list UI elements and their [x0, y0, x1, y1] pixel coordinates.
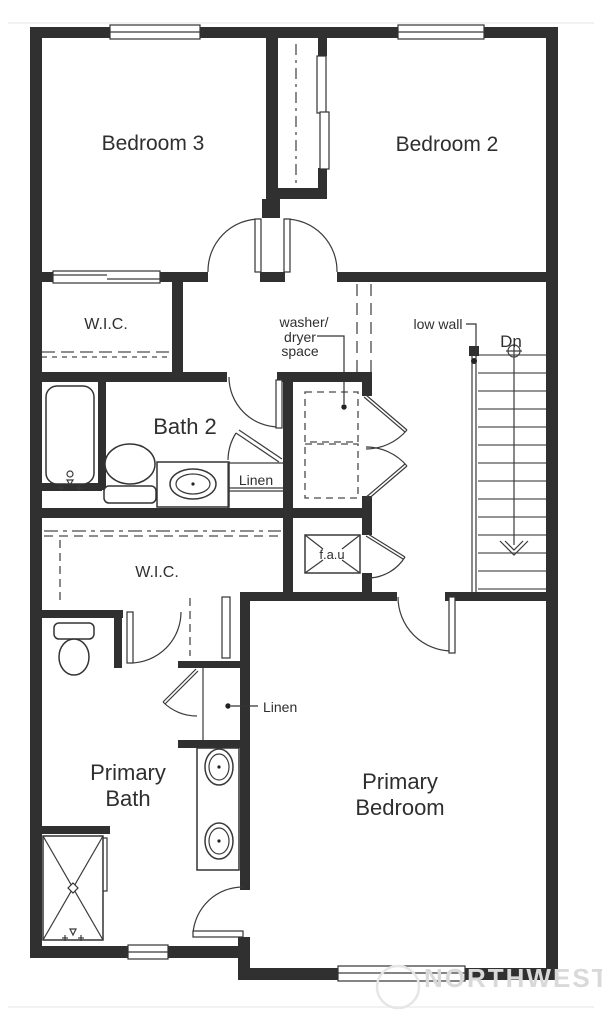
label-washer-dryer: washer/: [278, 314, 328, 330]
wall-stub: [160, 272, 172, 282]
label-bedroom2: Bedroom 2: [396, 133, 499, 156]
low-wall-cap: [469, 346, 479, 356]
cased-opening-wic1: [53, 271, 160, 283]
wall-segment: [168, 946, 250, 958]
label-primary-bath: Bath: [105, 786, 150, 811]
wall-segment: [445, 592, 558, 601]
wall-closet: [266, 38, 278, 188]
label-linen-bath2: Linen: [239, 472, 273, 488]
wall-toilet-room: [114, 618, 122, 668]
label-primary-bedroom: Primary: [362, 769, 438, 794]
wall-segment: [30, 508, 372, 518]
wall-segment-right: [546, 27, 558, 980]
wall-segment: [178, 740, 250, 748]
label-primary-bedroom: Bedroom: [355, 795, 444, 820]
label-wic2: W.I.C.: [135, 564, 179, 581]
wall-stub: [262, 199, 280, 218]
wall-stub: [362, 518, 372, 535]
wall-segment: [200, 27, 398, 38]
wall-shower: [30, 826, 110, 834]
wall-segment: [172, 282, 183, 372]
label-bedroom3: Bedroom 3: [102, 132, 205, 155]
wall-closet-stub: [318, 38, 327, 56]
watermark-text: NORTHWEST: [424, 963, 602, 993]
wall-closet: [266, 188, 327, 199]
bathtub: [46, 386, 94, 491]
vanity-bath2: [157, 462, 229, 507]
wall-tub-niche: [98, 380, 106, 490]
label-primary-bath: Primary: [90, 760, 166, 785]
toilet-bath2: [104, 444, 156, 503]
wall-segment: [30, 946, 128, 958]
wall-segment: [245, 592, 397, 601]
label-fau: f.a.u: [319, 547, 344, 562]
low-wall-leader-dot: [471, 358, 477, 364]
wall-segment: [240, 592, 250, 890]
floor-plan-canvas: Bedroom 3 Bedroom 2 W.I.C. Bath 2 W.I.C.…: [0, 0, 602, 1022]
window-bedroom3: [110, 25, 200, 39]
window-primary-bath: [128, 945, 168, 959]
washer-leader-dot: [341, 404, 346, 409]
wall-segment: [260, 272, 285, 282]
vanity-primary: [197, 748, 239, 870]
wall-stub: [42, 272, 53, 282]
wall-segment: [337, 272, 546, 282]
label-stairs-dn: Dn: [500, 332, 522, 351]
wall-stub: [362, 382, 372, 396]
wall-segment: [30, 372, 227, 382]
wall-segment: [178, 661, 250, 668]
wall-segment-left: [30, 27, 42, 958]
wall-segment: [240, 968, 338, 980]
wall-segment: [283, 372, 293, 601]
wall-closet-stub: [318, 168, 327, 188]
label-linen-primary: Linen: [263, 699, 297, 715]
label-washer-dryer: space: [281, 343, 319, 359]
window-bedroom2: [398, 25, 484, 39]
label-bath2: Bath 2: [153, 414, 217, 439]
label-low-wall: low wall: [413, 316, 462, 332]
wall-segment: [293, 372, 372, 382]
wall-segment: [30, 610, 123, 618]
door-wic2-opening: [222, 597, 230, 658]
label-wic1: W.I.C.: [84, 316, 128, 333]
shower: [43, 836, 103, 941]
floor-plan: Bedroom 3 Bedroom 2 W.I.C. Bath 2 W.I.C.…: [0, 0, 602, 1022]
linen-primary-leader-dot: [225, 703, 230, 708]
